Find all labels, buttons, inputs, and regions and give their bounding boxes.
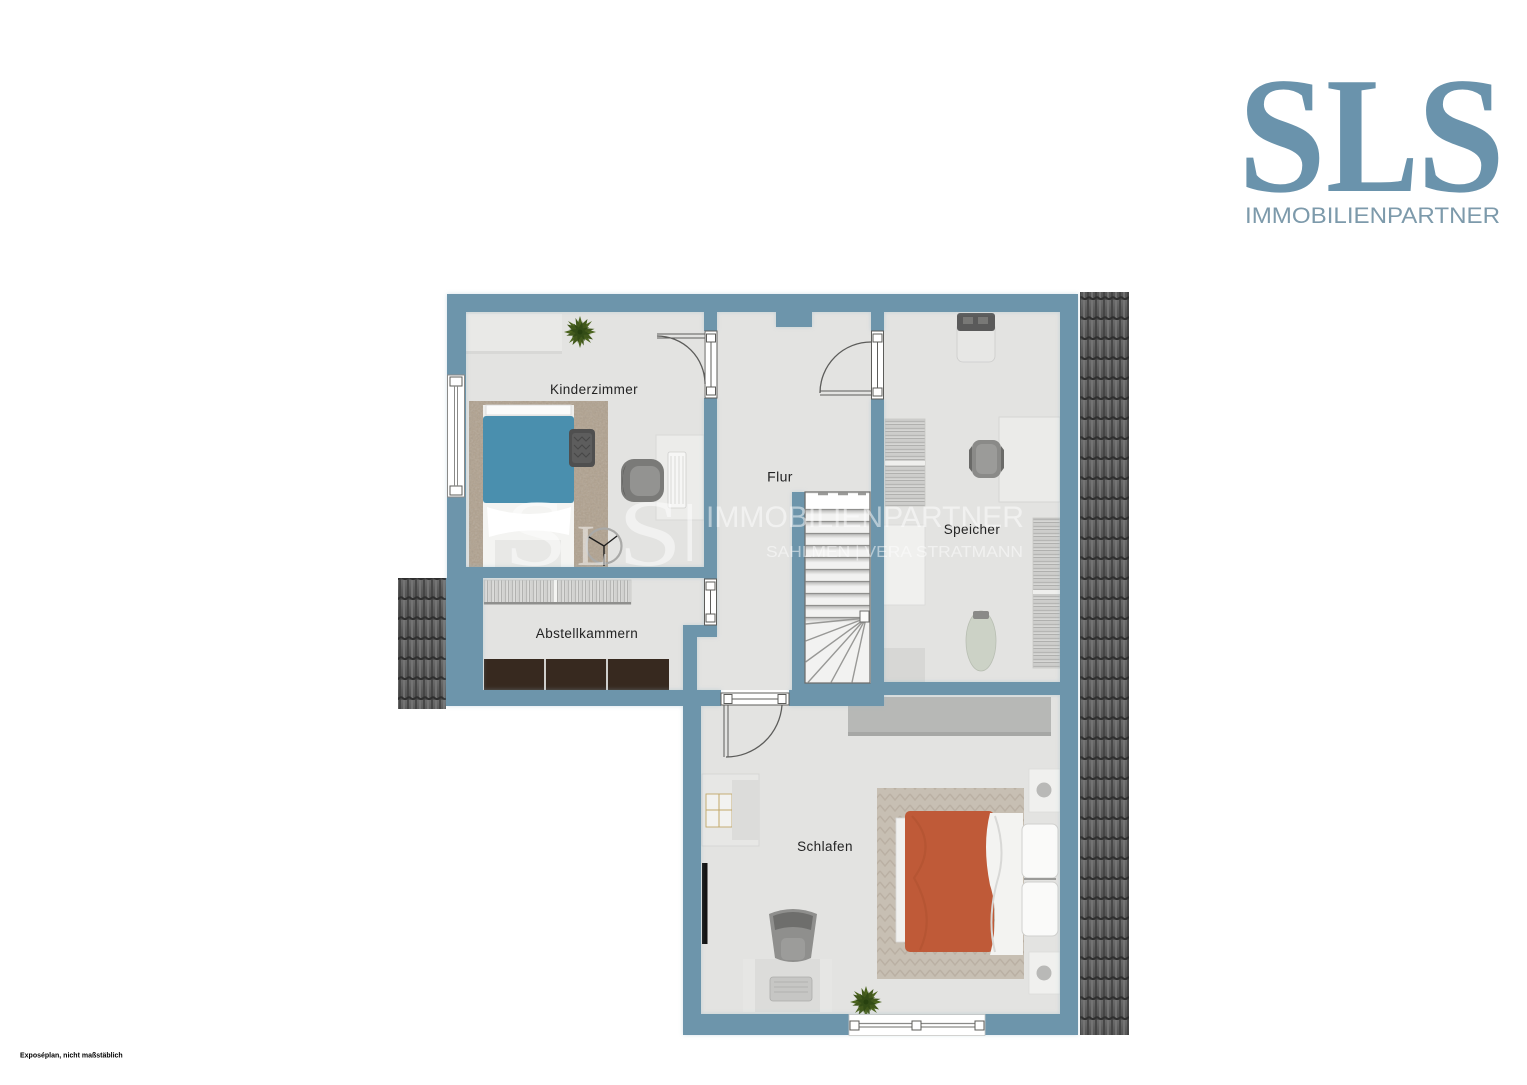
svg-text:SAHLMEN | VERA STRATMANN: SAHLMEN | VERA STRATMANN: [766, 544, 1023, 561]
svg-text:S: S: [1238, 43, 1326, 227]
svg-text:S: S: [1417, 43, 1505, 227]
svg-text:S: S: [618, 480, 682, 586]
svg-text:Kinderzimmer: Kinderzimmer: [550, 382, 638, 397]
svg-text:IMMOBILIENPARTNER: IMMOBILIENPARTNER: [706, 501, 1024, 534]
svg-text:Abstellkammern: Abstellkammern: [536, 626, 638, 641]
svg-text:L: L: [577, 513, 609, 578]
svg-text:Flur: Flur: [767, 469, 793, 485]
svg-text:S: S: [504, 480, 568, 586]
svg-text:Exposéplan, nicht maßstäblich: Exposéplan, nicht maßstäblich: [20, 1053, 123, 1060]
svg-text:L: L: [1326, 43, 1419, 227]
svg-text:IMMOBILIENPARTNER: IMMOBILIENPARTNER: [1245, 203, 1500, 228]
svg-text:Schlafen: Schlafen: [797, 839, 853, 854]
